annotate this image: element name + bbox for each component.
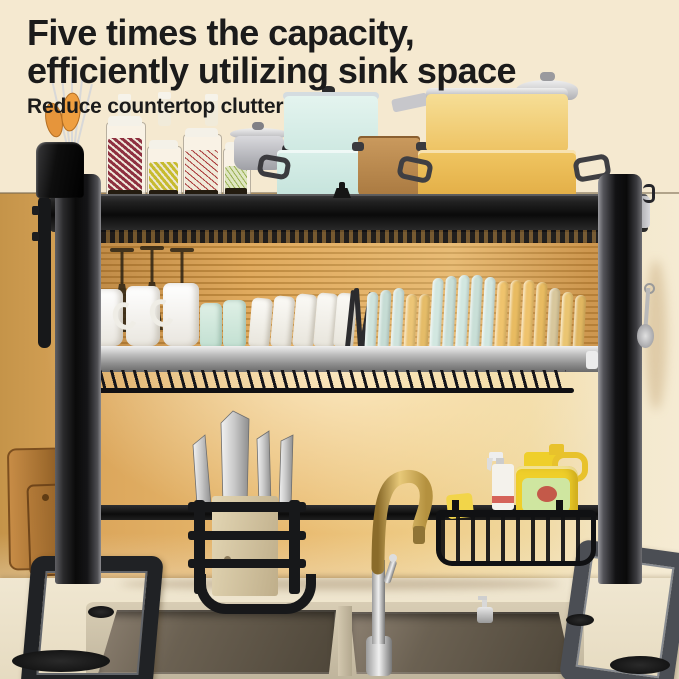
product-photo: Five times the capacity, efficiently uti… — [0, 0, 679, 679]
faucet-handle-knob — [389, 554, 397, 562]
white-mug — [163, 283, 199, 346]
knife — [193, 435, 211, 505]
knife-frame-bottom — [196, 574, 316, 614]
knife — [257, 431, 271, 505]
plate — [365, 292, 379, 348]
left-post — [55, 174, 101, 584]
right-post — [598, 174, 642, 584]
rail-nub — [32, 206, 39, 215]
faucet-spout — [413, 526, 425, 544]
storage-basket — [436, 510, 596, 566]
left-foot — [12, 650, 110, 672]
spray-bottle-body — [492, 464, 514, 510]
yellow-pot-lower — [418, 150, 576, 200]
lid-knob — [252, 122, 264, 130]
top-shelf-rail — [50, 194, 648, 232]
plate — [533, 282, 547, 348]
soap-dispenser-spout — [478, 596, 487, 600]
faucet-neck — [378, 476, 426, 568]
right-foot — [610, 656, 670, 674]
drainboard-mesh-edge — [92, 230, 606, 243]
right-inner-foot — [566, 614, 594, 626]
soap-dispenser-body — [477, 607, 493, 623]
board-hole — [42, 494, 49, 501]
plate — [494, 281, 509, 348]
plate — [560, 292, 574, 348]
steel-lid-knob — [540, 72, 555, 81]
headline-line2: efficiently utilizing sink space — [27, 52, 516, 90]
jar-cap — [185, 128, 218, 137]
blue-pot-handle-left — [256, 153, 291, 180]
plate-row — [366, 273, 598, 348]
utensil-holder-cup — [36, 142, 84, 198]
plate — [520, 280, 535, 348]
rail-nub — [32, 232, 39, 241]
plate — [481, 277, 496, 348]
side-hook — [643, 184, 655, 203]
mint-cup — [200, 303, 222, 347]
jug-label-art — [537, 486, 557, 502]
subheadline: Reduce countertop clutter — [27, 95, 516, 119]
white-cup — [248, 297, 273, 348]
ladle-head — [637, 324, 654, 348]
jar-cap — [149, 140, 178, 149]
brown-pot-handle-left — [352, 142, 364, 151]
wire-bar — [92, 388, 574, 393]
plate — [417, 294, 431, 348]
marketing-copy: Five times the capacity, efficiently uti… — [27, 14, 516, 119]
knife-frame-band — [188, 559, 306, 568]
plate — [573, 295, 587, 348]
plate — [404, 294, 418, 348]
knife — [221, 411, 249, 505]
second-shelf-rail — [72, 346, 618, 372]
plate — [377, 290, 391, 348]
plate — [507, 280, 522, 348]
spray-label — [492, 496, 514, 503]
faucet-handle — [383, 559, 397, 584]
left-inner-foot — [88, 606, 114, 618]
knife-frame-band — [188, 502, 306, 512]
shelf-clip — [586, 351, 598, 369]
knife — [279, 435, 293, 507]
jar-content-red — [108, 138, 142, 194]
gold-faucet — [330, 440, 450, 679]
knife-frame-band — [188, 531, 306, 540]
left-side-rail — [38, 196, 51, 348]
plate — [390, 288, 404, 348]
plate — [546, 288, 560, 348]
knife-set — [185, 405, 310, 510]
mint-cup — [223, 300, 246, 347]
headline-line1: Five times the capacity, — [27, 14, 516, 52]
